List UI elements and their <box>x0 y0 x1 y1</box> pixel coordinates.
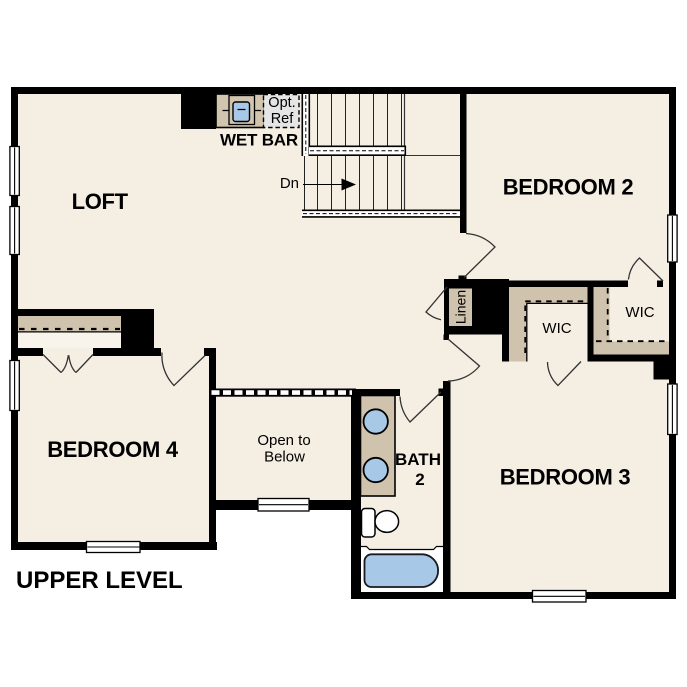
svg-text:Open to: Open to <box>257 432 310 449</box>
svg-text:Below: Below <box>264 449 305 466</box>
svg-text:WIC: WIC <box>542 320 571 337</box>
svg-text:WIC: WIC <box>625 304 654 321</box>
svg-text:BEDROOM 4: BEDROOM 4 <box>47 437 179 462</box>
svg-text:BEDROOM 3: BEDROOM 3 <box>500 465 631 490</box>
svg-text:Ref: Ref <box>271 111 295 127</box>
svg-text:Opt.: Opt. <box>268 95 295 111</box>
svg-text:BATH: BATH <box>395 450 441 469</box>
svg-text:Dn: Dn <box>280 175 299 192</box>
svg-text:WET BAR: WET BAR <box>220 131 298 150</box>
svg-text:LOFT: LOFT <box>72 189 129 214</box>
svg-text:BEDROOM 2: BEDROOM 2 <box>503 174 634 199</box>
svg-text:Linen: Linen <box>453 290 469 324</box>
svg-text:2: 2 <box>415 470 424 489</box>
svg-text:UPPER LEVEL: UPPER LEVEL <box>16 567 183 594</box>
